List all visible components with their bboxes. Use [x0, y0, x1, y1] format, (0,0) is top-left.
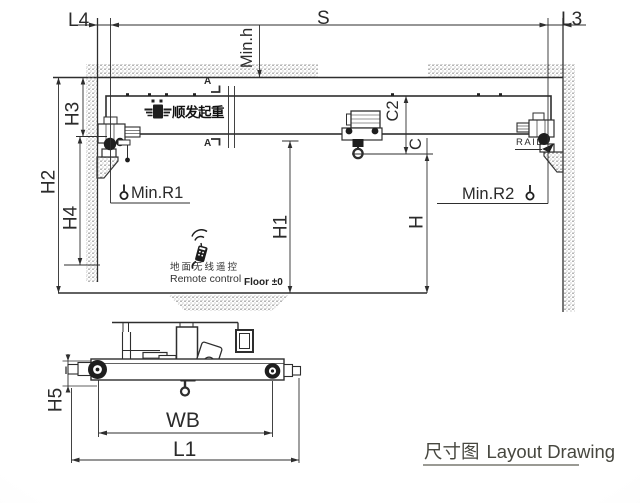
wheel [104, 138, 116, 150]
title-underline [423, 464, 579, 466]
dim-label-h3: H3 [64, 102, 83, 126]
travel-motor [517, 123, 529, 132]
remote-control-label-en: Remote control [170, 274, 241, 285]
dim-label-l3: L3 [561, 10, 582, 29]
section-mark-a-top: A [204, 77, 211, 87]
dim-label-min-r1: Min.R1 [131, 185, 183, 202]
dim-label-h: H [408, 215, 427, 229]
crane-layout-drawing: L4 S L3 Min.h H3 H2 H4 H1 H C2 C Min.R1 … [0, 0, 640, 503]
dim-label-s: S [317, 9, 330, 28]
floor-level-label: Floor ±0 [244, 278, 283, 288]
dimension-arrows [56, 23, 571, 293]
dim-label-wb: WB [166, 410, 200, 431]
dim-label-l1: L1 [173, 439, 196, 460]
section-mark-bracket-top [211, 86, 220, 93]
drawing-title-en: Layout Drawing [487, 441, 616, 462]
hoist-motor [351, 111, 380, 128]
dim-label-c: C [408, 138, 425, 150]
drawing-linework [0, 0, 640, 503]
hook-block [353, 139, 364, 147]
dim-label-h5: H5 [47, 388, 66, 412]
electric-hoist [342, 111, 382, 158]
ceiling-hatch-right [428, 64, 563, 77]
hook-icon [181, 388, 189, 396]
remote-control-label-cn: 地面无线遥控 [170, 263, 239, 273]
end-view [66, 323, 301, 396]
left-corbel [97, 157, 118, 178]
dimension-lines [59, 18, 587, 293]
ground-hatch [168, 295, 290, 311]
dim-label-c2: C2 [385, 100, 402, 121]
dim-label-h2: H2 [40, 170, 59, 194]
dim-label-min-r2: Min.R2 [462, 186, 514, 203]
end-carriage-beam [91, 359, 284, 380]
hook-icon [353, 149, 362, 158]
brand-logo-text: 顺发起重 [172, 106, 224, 120]
drawing-title: 尺寸图Layout Drawing [424, 438, 615, 464]
building-structure [53, 18, 575, 312]
drawing-title-cn: 尺寸图 [424, 441, 480, 462]
dim-label-min-h: Min.h [239, 28, 256, 68]
left-rail-block [102, 149, 116, 157]
dim-label-h1: H1 [272, 215, 291, 239]
left-wall-hatch [86, 64, 97, 282]
section-mark-bracket-bottom [211, 139, 220, 146]
travel-motor [125, 127, 140, 137]
rail-label: RAIL [516, 138, 543, 148]
right-wall-hatch [563, 64, 575, 312]
right-corbel [544, 152, 563, 172]
section-mark-a-bottom: A [204, 139, 211, 149]
dim-label-l4: L4 [68, 11, 89, 30]
dim-label-h4: H4 [62, 206, 81, 230]
